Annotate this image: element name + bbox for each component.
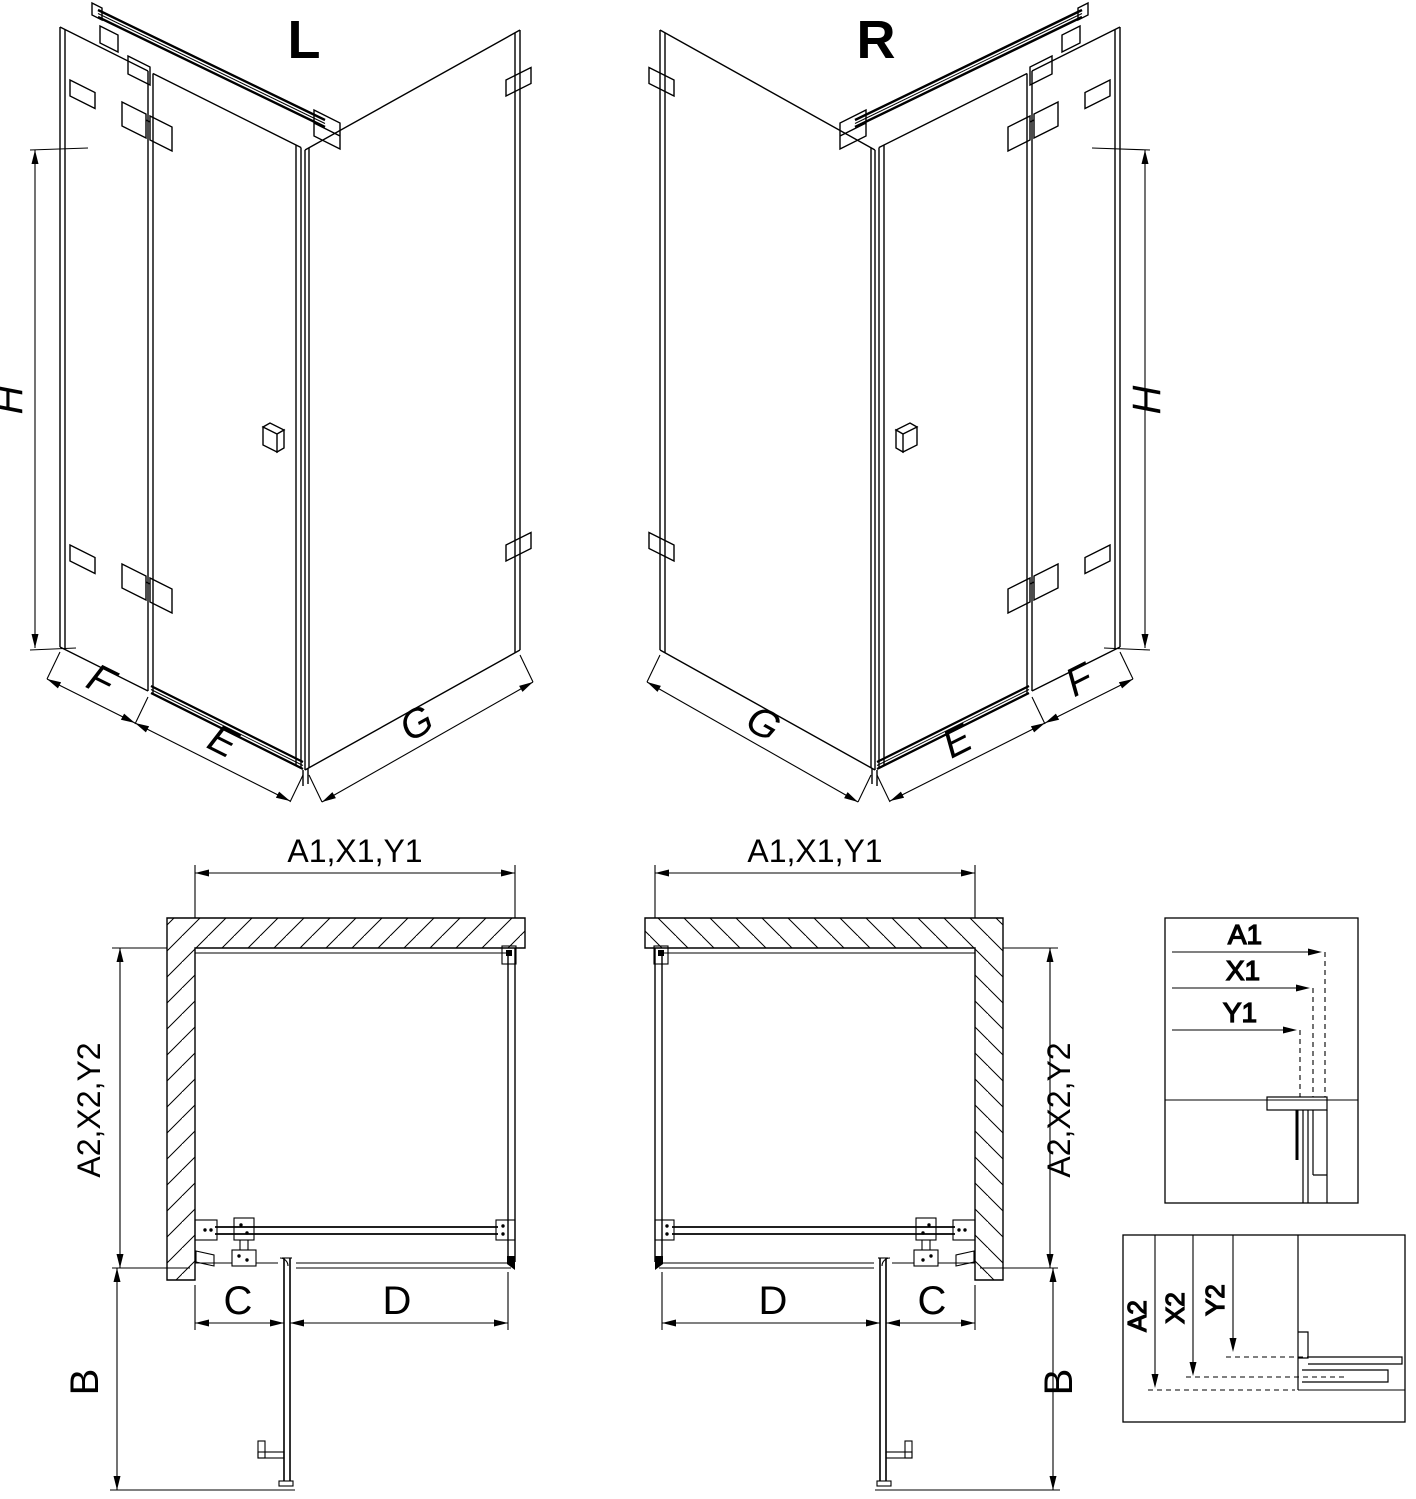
detail-depth-label-a2: A2 (1122, 1300, 1152, 1332)
plan-view-left: A1,X1,Y1 A2,X2,Y2 C D B (63, 833, 525, 1490)
plan-right-dim-side: A2,X2,Y2 (1041, 1042, 1077, 1177)
iso-view-right: R H F E G (647, 3, 1169, 802)
plan-right-artwork (645, 865, 1060, 1490)
detail-depth-label-x2: X2 (1160, 1292, 1190, 1324)
plan-left-dim-top: A1,X1,Y1 (287, 833, 422, 869)
detail-depth-label-y2: Y2 (1200, 1284, 1230, 1316)
plan-left-artwork (110, 865, 525, 1490)
detail-width-label-a1: A1 (1228, 919, 1262, 950)
detail-view-width: A1 X1 Y1 (1165, 918, 1358, 1203)
iso-left-dim-height: H (0, 385, 31, 414)
plan-right-dim-top: A1,X1,Y1 (747, 833, 882, 869)
plan-right-dim-c: C (918, 1279, 947, 1323)
plan-left-dim-c: C (224, 1279, 253, 1323)
iso-view-left: L H F E G (0, 3, 533, 802)
plan-view-right: A1,X1,Y1 A2,X2,Y2 D C B (645, 833, 1081, 1490)
iso-left-dim-return: G (392, 697, 441, 751)
plan-right-dim-d: D (759, 1279, 788, 1323)
iso-right-dim-return: G (739, 697, 788, 751)
detail-view-depth: A2 X2 Y2 (1122, 1235, 1405, 1422)
plan-right-dim-b: B (1037, 1369, 1081, 1396)
plan-left-dim-b: B (63, 1369, 107, 1396)
detail-width-label-x1: X1 (1226, 955, 1260, 986)
detail-width-label-y1: Y1 (1223, 997, 1257, 1028)
plan-left-dim-d: D (383, 1279, 412, 1323)
plan-left-dim-side: A2,X2,Y2 (71, 1042, 107, 1177)
iso-right-dim-height: H (1125, 385, 1169, 414)
shower-enclosure-technical-diagram: L H F E G R H F E G A1,X1,Y1 A2,X2,Y2 C … (0, 0, 1416, 1499)
iso-left-title: L (288, 10, 321, 70)
iso-right-title: R (857, 10, 896, 70)
